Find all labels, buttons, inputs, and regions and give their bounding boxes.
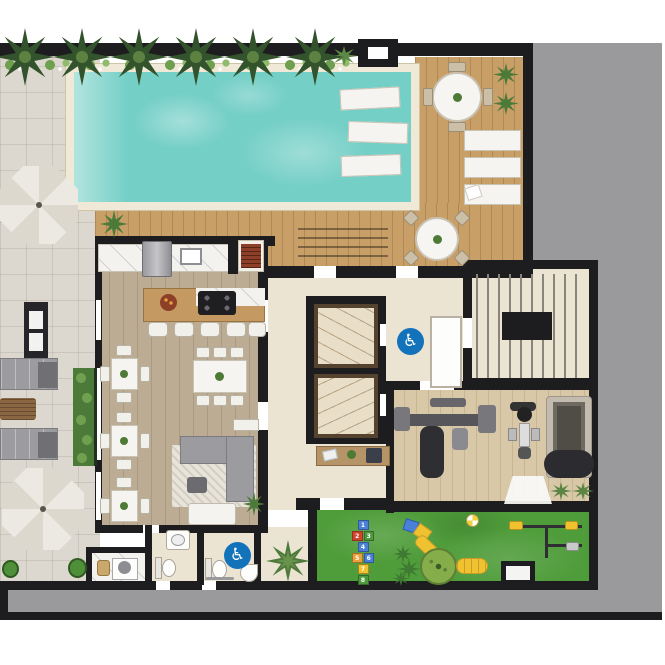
in-pool-lounger bbox=[348, 121, 409, 144]
table-centerpiece bbox=[433, 235, 442, 244]
dining-chair bbox=[116, 392, 132, 403]
door-opening bbox=[463, 318, 472, 348]
dining-chair bbox=[100, 433, 110, 449]
cooktop bbox=[198, 291, 236, 315]
ottoman bbox=[187, 477, 207, 493]
door-opening bbox=[156, 581, 170, 590]
fire-table-slot bbox=[29, 311, 43, 329]
dining-chair bbox=[230, 347, 244, 358]
gym-top-wall bbox=[386, 381, 598, 390]
hedge-planter bbox=[73, 368, 97, 466]
console-frame bbox=[366, 448, 382, 463]
sun-lounger bbox=[464, 130, 521, 151]
outer-bottom-border bbox=[0, 612, 662, 620]
umbrella-pole bbox=[36, 202, 42, 208]
kitchen-wall-chunk bbox=[228, 238, 238, 274]
hopscotch-cell: 3 bbox=[364, 531, 375, 541]
toilet-tank bbox=[155, 557, 162, 579]
outdoor-coffee-table bbox=[0, 398, 36, 420]
potted-shrub bbox=[68, 558, 87, 578]
hopscotch-cell: 6 bbox=[364, 553, 375, 563]
stairwell-top-wall bbox=[463, 260, 598, 269]
laundry-basket bbox=[97, 560, 110, 576]
hopscotch-row: 7 bbox=[352, 564, 374, 574]
play-ball bbox=[466, 514, 479, 527]
refrigerator bbox=[142, 241, 172, 277]
elevator-1-floor bbox=[318, 308, 374, 364]
table-centerpiece bbox=[120, 437, 128, 445]
deck-chair bbox=[448, 62, 466, 72]
walkway-left-cap bbox=[0, 581, 8, 620]
playground-left-wall bbox=[308, 501, 317, 589]
hopscotch-row: 4 bbox=[352, 542, 374, 552]
table-centerpiece bbox=[120, 502, 128, 510]
in-pool-lounger bbox=[339, 86, 400, 110]
dining-chair bbox=[116, 412, 132, 423]
hopscotch-cell: 5 bbox=[352, 553, 363, 563]
playground-tree bbox=[420, 548, 457, 585]
exercise-bike-pedal bbox=[508, 428, 517, 441]
swing-seat bbox=[565, 521, 578, 530]
dining-chair bbox=[140, 366, 150, 382]
hopscotch-row: 1 bbox=[352, 520, 374, 530]
sun-lounger bbox=[464, 157, 521, 178]
window-opening bbox=[96, 300, 101, 340]
exercise-bike-pedal bbox=[531, 428, 540, 441]
exercise-bike-head bbox=[517, 407, 532, 422]
outside-area-right-upper bbox=[533, 43, 662, 275]
gym-machine-plate bbox=[478, 405, 496, 433]
bar-stool bbox=[148, 322, 168, 337]
washing-machine-door bbox=[118, 561, 131, 574]
grill bbox=[241, 244, 261, 268]
deck-chair bbox=[483, 88, 493, 106]
hopscotch-row: 8 bbox=[352, 575, 374, 585]
kitchen-sink bbox=[180, 248, 202, 265]
door-opening bbox=[202, 581, 216, 590]
table-centerpiece bbox=[453, 93, 462, 102]
elevator-door bbox=[380, 394, 386, 416]
umbrella-pole bbox=[40, 506, 47, 513]
console-plant bbox=[347, 450, 356, 459]
accessibility-icon: ♿ bbox=[224, 542, 251, 569]
door-opening bbox=[320, 498, 344, 510]
stair-landing-block bbox=[502, 312, 552, 340]
in-pool-lounger bbox=[341, 154, 402, 177]
fruit-bowl bbox=[160, 294, 177, 311]
exercise-bike-frame bbox=[519, 423, 530, 447]
outdoor-sofa-chaise bbox=[38, 432, 57, 458]
living-shelf bbox=[233, 419, 259, 431]
potted-shrub bbox=[2, 560, 19, 578]
hopscotch-row: 56 bbox=[352, 553, 374, 563]
lobby-closet bbox=[430, 316, 462, 388]
treadmill-base bbox=[544, 450, 594, 478]
gym-machine-arm bbox=[430, 398, 466, 407]
hopscotch-row: 23 bbox=[352, 531, 374, 541]
table-centerpiece bbox=[215, 372, 224, 381]
grab-bar bbox=[206, 577, 234, 580]
wall-fixture-inner bbox=[368, 47, 388, 59]
dining-chair bbox=[140, 498, 150, 514]
dining-chair bbox=[196, 347, 210, 358]
dining-chair bbox=[213, 347, 227, 358]
sofa-sectional bbox=[226, 436, 254, 502]
gym-machine-plate bbox=[394, 407, 410, 431]
door-opening bbox=[258, 402, 268, 430]
swing-seat bbox=[509, 521, 523, 530]
bathroom-wall bbox=[197, 525, 204, 585]
bar-stool bbox=[248, 322, 266, 337]
dining-chair bbox=[140, 433, 150, 449]
deck-steps bbox=[298, 228, 388, 264]
outside-walkway-band bbox=[6, 588, 598, 614]
gym-machine-seat bbox=[452, 428, 468, 450]
dining-chair bbox=[196, 395, 210, 406]
dining-chair bbox=[116, 345, 132, 356]
gym-bottom-wall bbox=[392, 501, 598, 512]
bar-stool bbox=[200, 322, 220, 337]
hopscotch: 1 23 4 56 7 8 bbox=[352, 520, 374, 578]
fire-table-slot bbox=[29, 333, 43, 351]
toilet-bowl bbox=[162, 559, 176, 577]
dining-chair bbox=[100, 366, 110, 382]
exercise-bike-seat bbox=[518, 447, 531, 459]
dining-chair bbox=[230, 395, 244, 406]
play-log bbox=[456, 558, 488, 574]
sink-basin bbox=[171, 534, 185, 546]
dining-chair bbox=[116, 477, 132, 488]
deck-chair bbox=[423, 88, 433, 106]
hopscotch-cell: 1 bbox=[358, 520, 369, 530]
dining-chair bbox=[116, 459, 132, 470]
swing-post bbox=[545, 525, 548, 558]
door-opening bbox=[396, 266, 418, 278]
hopscotch-cell: 4 bbox=[358, 542, 369, 552]
outside-area-right-lower bbox=[598, 260, 662, 613]
table-centerpiece bbox=[120, 370, 128, 378]
wheelchair-glyph: ♿ bbox=[230, 547, 245, 564]
accessibility-icon: ♿ bbox=[397, 328, 424, 355]
bar-stool bbox=[226, 322, 246, 337]
hopscotch-cell: 2 bbox=[352, 531, 363, 541]
tv-console bbox=[188, 503, 236, 525]
gym-weight-stack bbox=[420, 426, 444, 478]
bathroom-wall bbox=[145, 525, 152, 585]
door-opening bbox=[314, 266, 336, 278]
right-wall-upper bbox=[523, 43, 533, 275]
dining-chair bbox=[213, 395, 227, 406]
elevator-door bbox=[380, 324, 386, 346]
elevator-2-floor bbox=[318, 378, 374, 434]
wheelchair-glyph: ♿ bbox=[403, 333, 418, 350]
bar-stool bbox=[174, 322, 194, 337]
outdoor-sofa-chaise bbox=[38, 362, 57, 388]
playground-bench bbox=[506, 566, 530, 580]
hopscotch-cell: 7 bbox=[358, 564, 369, 574]
service-room-wall bbox=[86, 547, 150, 553]
dining-chair bbox=[100, 498, 110, 514]
hopscotch-cell: 8 bbox=[358, 575, 369, 585]
floor-plan: ♿ 1 23 4 56 7 8 bbox=[0, 0, 665, 665]
dining-right-wall bbox=[258, 236, 268, 532]
swing-seat bbox=[566, 542, 579, 551]
